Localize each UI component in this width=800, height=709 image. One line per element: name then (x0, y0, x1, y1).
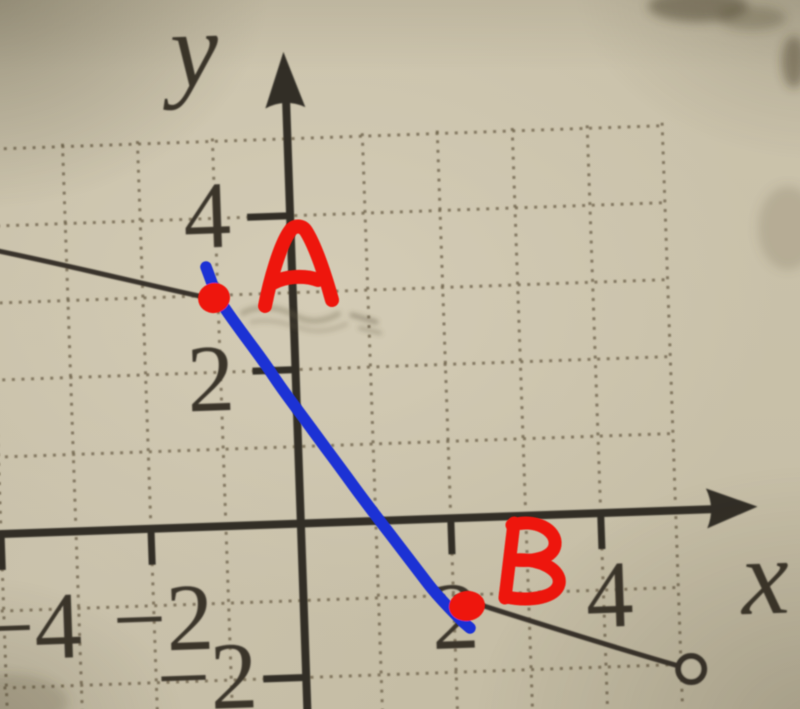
y-tick-4 (247, 216, 292, 218)
corner-shadow (0, 674, 68, 709)
x-tick-label-neg4: −4 (0, 572, 84, 681)
y-axis-arrowhead-icon (263, 51, 305, 108)
grid-v-line (662, 123, 682, 703)
grid-h-line (3, 664, 683, 688)
x-tick-label-neg2: −2 (111, 564, 216, 673)
ink-mark-top-right-2 (718, 6, 786, 30)
grid-h-line (0, 126, 664, 150)
point-a-letter (265, 227, 332, 307)
x-tick-neg2 (151, 525, 152, 565)
grid-h-line (0, 203, 667, 227)
grid-h-line (0, 357, 672, 381)
page-edge-mark (782, 36, 800, 88)
grid-h-line (1, 587, 681, 611)
x-tick-label-4: 4 (584, 541, 635, 649)
x-axis (0, 509, 722, 534)
textbook-photo: 4 2 −2 −4 −2 2 4 y x (0, 0, 800, 709)
function-right-segment (457, 590, 678, 674)
y-tick-label-2: 2 (185, 325, 236, 433)
y-tick-label-4: 4 (181, 162, 232, 270)
x-tick-2 (451, 514, 452, 554)
open-circle-endpoint (678, 656, 705, 683)
printed-graph: 4 2 −2 −4 −2 2 4 y x (0, 0, 794, 709)
x-tick-neg4 (1, 530, 2, 570)
x-axis-label: x (737, 518, 791, 639)
point-b-letter (505, 523, 559, 599)
y-tick-neg2 (263, 677, 308, 679)
grid-v-line (362, 133, 382, 709)
y-axis-label: y (158, 0, 220, 111)
grid-h-line (0, 433, 675, 457)
graph-figure: 4 2 −2 −4 −2 2 4 y x (0, 0, 800, 709)
dotted-grid (0, 123, 684, 709)
bleed-through-smudge (758, 186, 800, 270)
